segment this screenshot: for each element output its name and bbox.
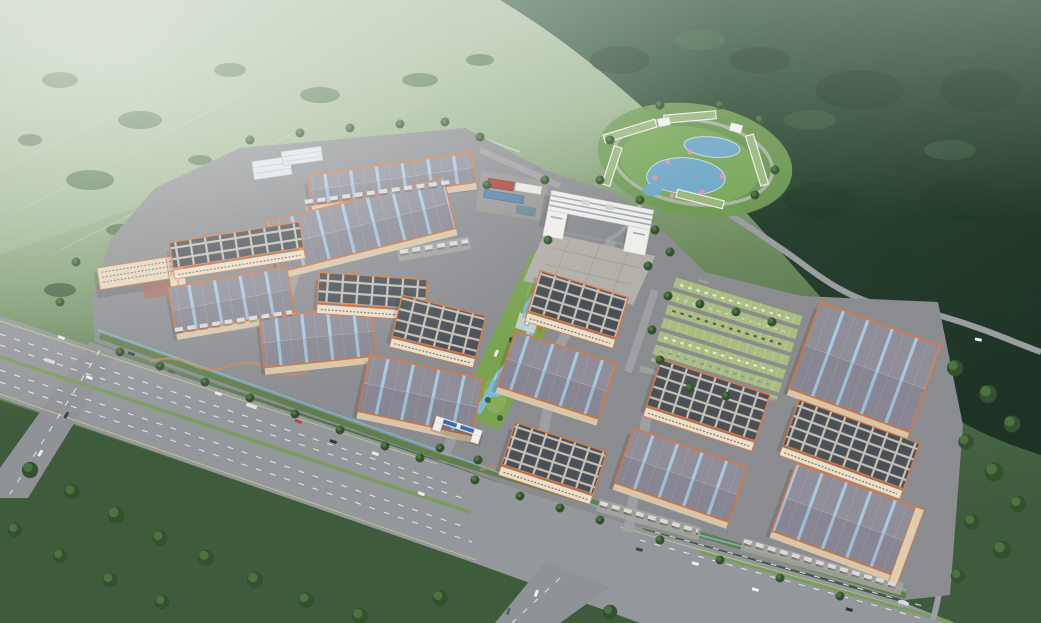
atmospheric-haze: [0, 0, 1041, 623]
aerial-rendering: [0, 0, 1041, 623]
rendering-canvas: [0, 0, 1041, 623]
